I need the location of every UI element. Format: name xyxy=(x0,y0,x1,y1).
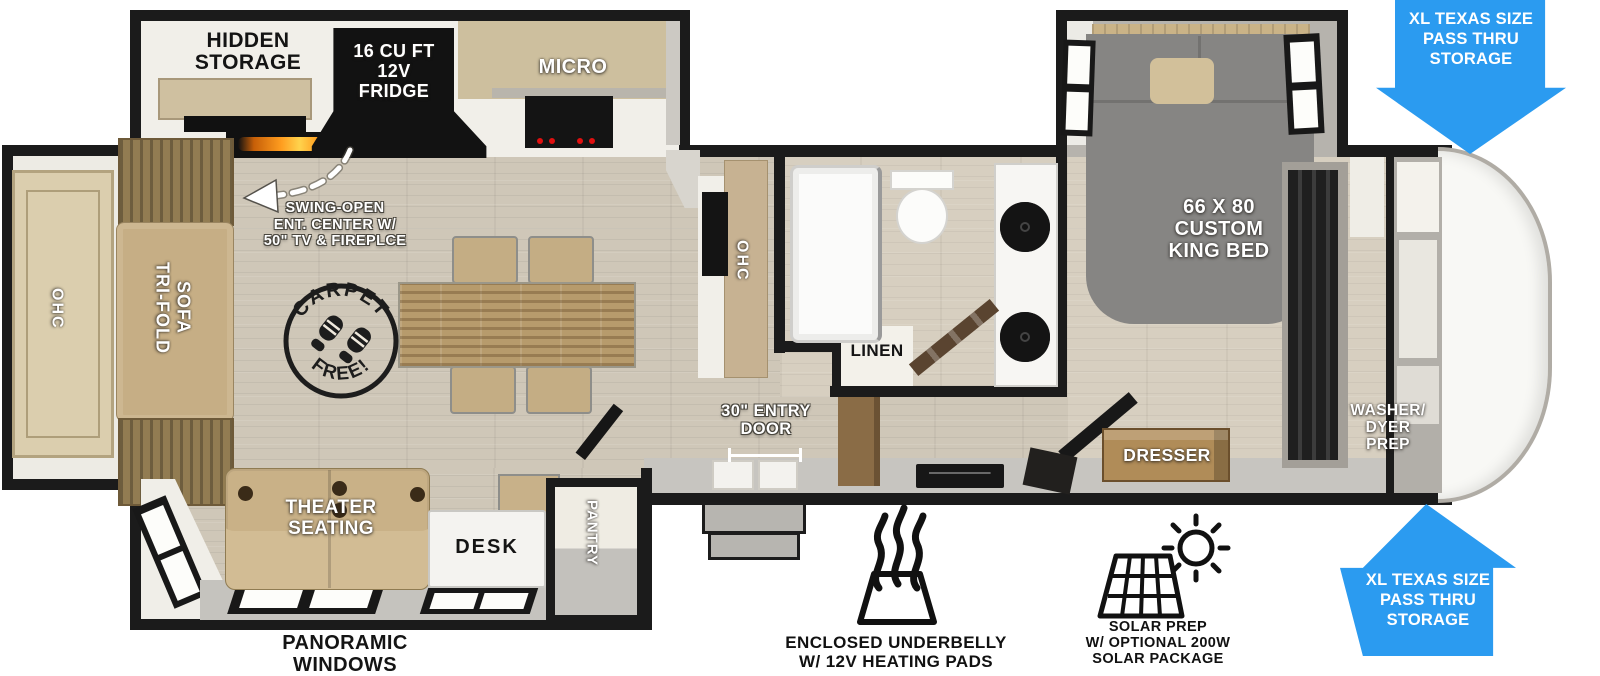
entry-door-label: 30" ENTRY DOOR xyxy=(700,402,832,438)
pass-thru-arrow-top: XL TEXAS SIZE PASS THRU STORAGE xyxy=(1376,0,1566,154)
shower xyxy=(790,165,882,343)
linen-label: LINEN xyxy=(838,342,916,361)
heating-pad-icon xyxy=(832,500,962,632)
swing-open-label: SWING-OPEN ENT. CENTER W/ 50" TV & FIREP… xyxy=(244,200,426,250)
underbelly-caption: ENCLOSED UNDERBELLY W/ 12V HEATING PADS xyxy=(762,634,1030,671)
ohc-left-label: OHC xyxy=(48,288,66,330)
cupholder xyxy=(410,487,425,502)
bath-wall-bottom xyxy=(830,386,1067,397)
solar-panel-icon xyxy=(1086,512,1236,624)
dining-chair xyxy=(528,236,594,284)
panoramic-windows-label: PANORAMIC WINDOWS xyxy=(252,632,438,676)
ohc-mid-label: OHC xyxy=(733,240,751,282)
dining-chair xyxy=(452,236,518,284)
bedroom-window-right xyxy=(1283,33,1324,135)
bath-wall-left xyxy=(774,157,785,353)
dining-table xyxy=(398,282,636,368)
entry-step xyxy=(702,502,806,534)
carpet-free-stamp: CARPET FREE! xyxy=(280,280,402,402)
panoramic-window xyxy=(420,588,538,614)
sofa-wood-top xyxy=(118,138,234,226)
theater-label: THEATER SEATING xyxy=(260,498,402,540)
hidden-storage-label: HIDDEN STORAGE xyxy=(168,30,328,74)
solar-caption: SOLAR PREP W/ OPTIONAL 200W SOLAR PACKAG… xyxy=(1056,620,1260,668)
floor-vent xyxy=(916,464,1004,488)
entry-door-panel xyxy=(758,460,798,490)
wd-cabinet xyxy=(1399,240,1437,358)
king-bed-label: 66 X 80 CUSTOM KING BED xyxy=(1126,196,1312,262)
vanity-sink xyxy=(1000,312,1050,362)
boot-print-icon xyxy=(308,312,346,354)
dining-chair xyxy=(450,366,516,414)
dining-chair xyxy=(526,366,592,414)
entry-door-dim-bracket xyxy=(728,448,802,462)
wood-column xyxy=(838,394,880,486)
range-knob xyxy=(589,138,595,144)
hidden-storage-cabinet xyxy=(158,78,312,120)
dresser-label: DRESSER xyxy=(1106,446,1228,465)
rv-floorplan-diagram: CARPET FREE! HID xyxy=(0,0,1600,676)
toilet-tank xyxy=(890,170,954,190)
range-knob xyxy=(577,138,583,144)
micro-label: MICRO xyxy=(508,56,638,78)
bedroom-window-left xyxy=(1060,39,1095,136)
toilet-bowl xyxy=(896,188,948,244)
pass-thru-top-label: XL TEXAS SIZE PASS THRU STORAGE xyxy=(1409,9,1533,154)
pass-thru-bottom-label: XL TEXAS SIZE PASS THRU STORAGE xyxy=(1366,570,1490,656)
tv-panel-mid xyxy=(702,192,728,276)
bed-pillow xyxy=(1150,58,1214,104)
slide-return-wall xyxy=(666,21,680,145)
pass-thru-arrow-bottom: XL TEXAS SIZE PASS THRU STORAGE xyxy=(1340,504,1516,656)
cupholder xyxy=(332,481,347,496)
washer-dryer-label: WASHER/ DYER PREP xyxy=(1332,402,1444,453)
fridge-label: 16 CU FT 12V FRIDGE xyxy=(328,42,460,101)
wd-cabinet xyxy=(1397,162,1439,232)
pantry-label: PANTRY xyxy=(583,500,600,566)
entry-door-panel xyxy=(712,460,754,490)
range-knob xyxy=(549,138,555,144)
range-knob xyxy=(537,138,543,144)
front-cap xyxy=(1438,147,1552,503)
vanity-sink xyxy=(1000,202,1050,252)
cupholder xyxy=(238,486,253,501)
tri-fold-sofa-label: TRI-FOLD SOFA xyxy=(152,262,193,354)
desk-label: DESK xyxy=(440,536,534,558)
bedroom-cabinet xyxy=(1350,157,1384,237)
entry-step xyxy=(708,532,800,560)
